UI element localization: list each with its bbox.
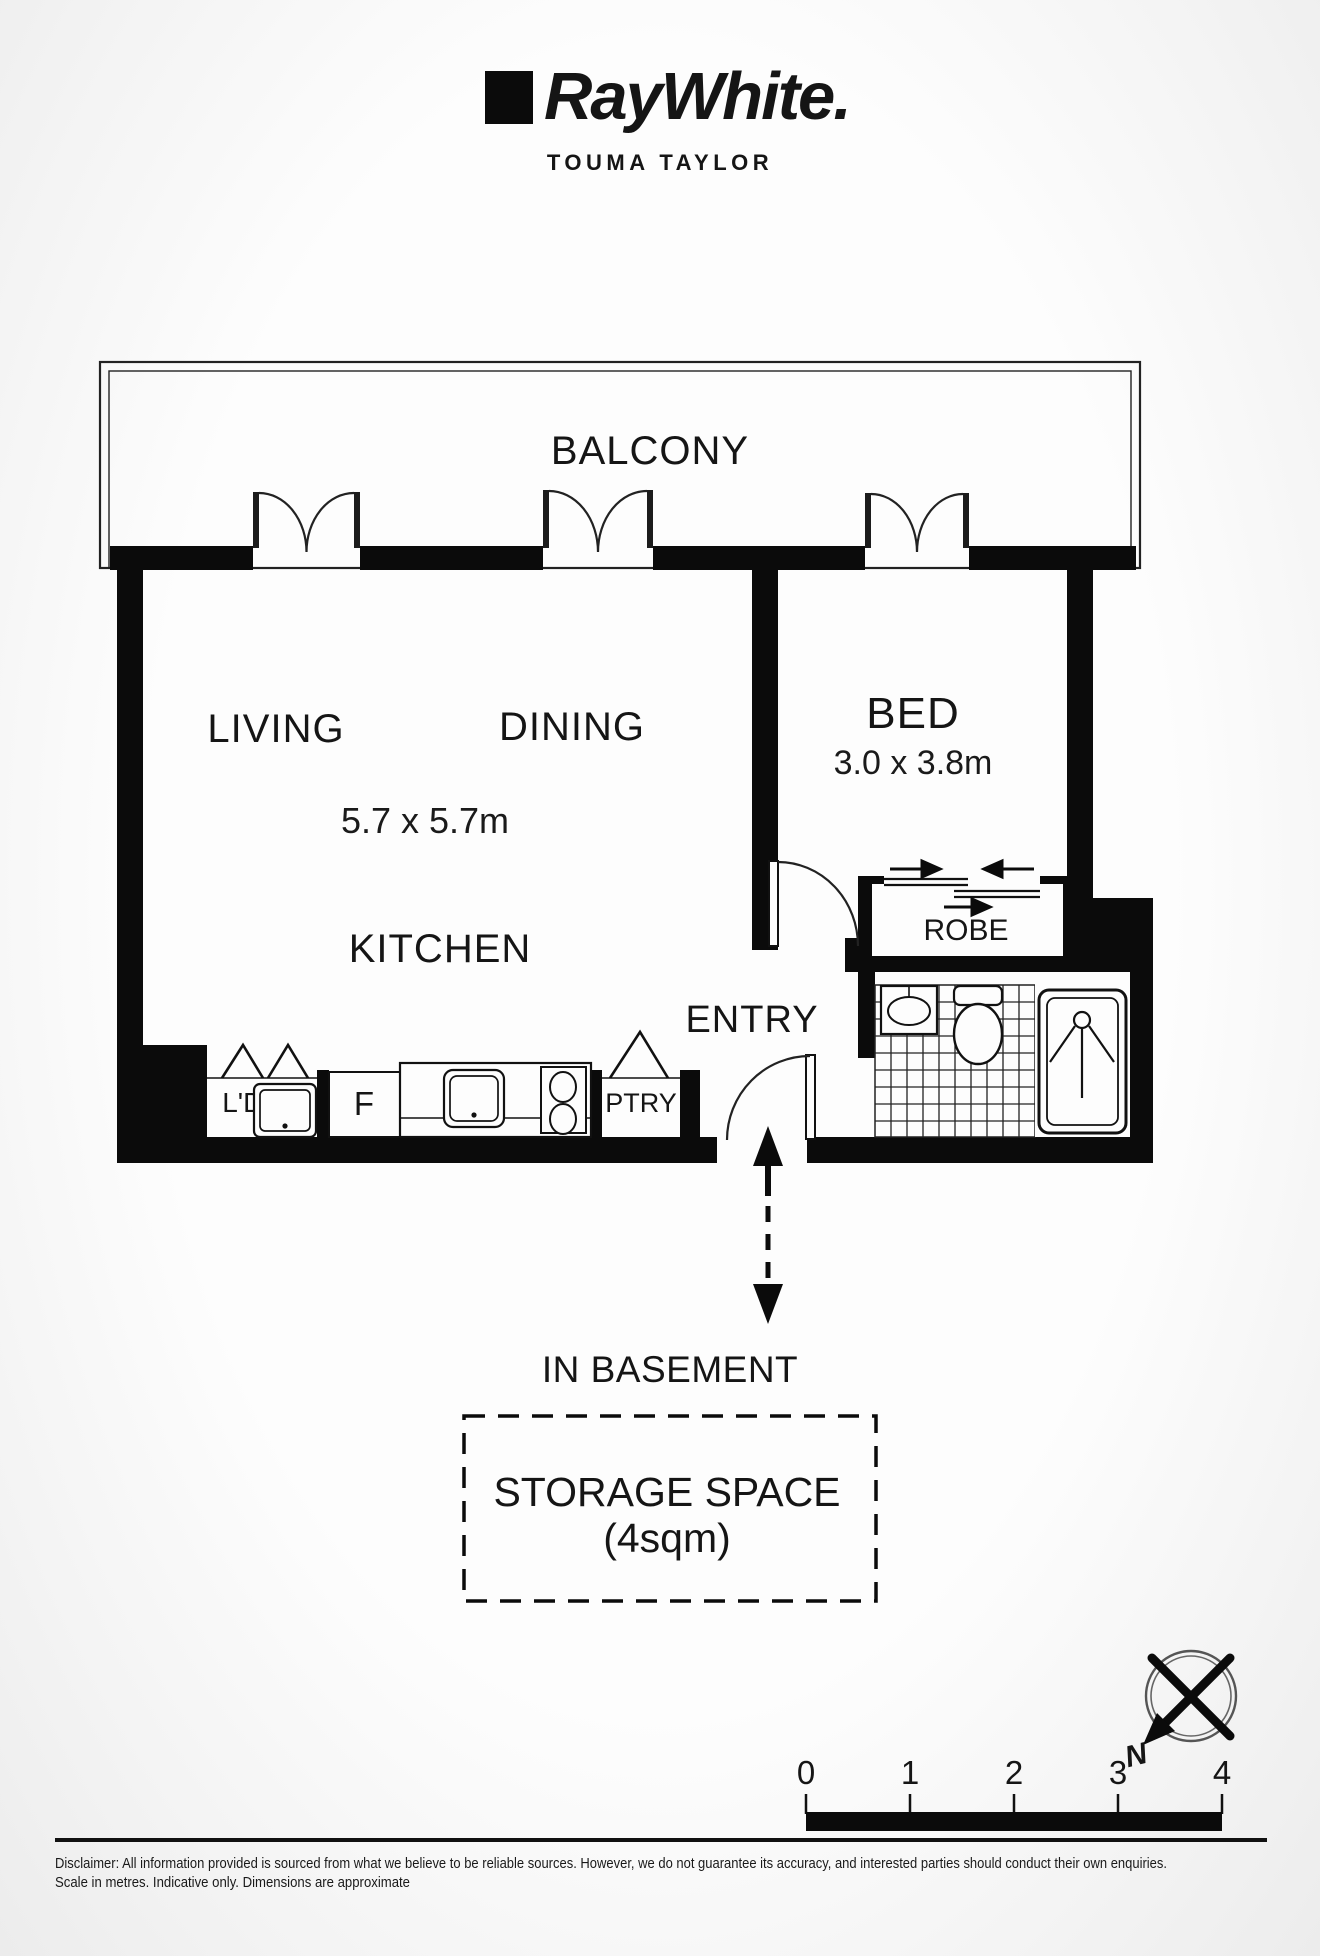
bottom-wall <box>807 1137 1153 1163</box>
fridge-label: F <box>354 1085 374 1122</box>
north-wall <box>360 546 543 570</box>
bifold-door-icon <box>610 1032 668 1078</box>
brand-square-icon <box>485 71 533 124</box>
scale-tick-label: 3 <box>1109 1754 1127 1791</box>
bottom-wall <box>117 1137 717 1163</box>
scale-tick-label: 4 <box>1213 1754 1231 1791</box>
entry-door <box>727 1055 815 1140</box>
bed-dimensions: 3.0 x 3.8m <box>834 744 993 782</box>
entry-label: ENTRY <box>685 999 818 1041</box>
bifold-door-icon <box>222 1045 308 1078</box>
corner-wall <box>1067 898 1153 972</box>
french-door <box>253 492 360 552</box>
bath-right-wall <box>1130 970 1153 1163</box>
bed-label: BED <box>866 689 959 738</box>
laundry-closet: L'DRY <box>207 1045 317 1137</box>
french-door <box>865 493 969 552</box>
storage-box: STORAGE SPACE (4sqm) <box>464 1416 876 1601</box>
floorplan-canvas: RayWhite. TOUMA TAYLOR <box>0 0 1320 1956</box>
bench-sink <box>444 1070 504 1127</box>
living-dimensions: 5.7 x 5.7m <box>341 800 509 841</box>
kitchen-label: KITCHEN <box>349 927 532 971</box>
robe-label: ROBE <box>923 914 1008 947</box>
pantry-label: PTRY <box>605 1088 677 1118</box>
toilet-icon <box>954 986 1002 1064</box>
scale-note-text: Scale in metres. Indicative only. Dimens… <box>55 1875 410 1891</box>
bathroom-sink <box>881 986 937 1034</box>
stub-wall <box>591 1070 602 1137</box>
bed-door <box>769 861 858 946</box>
shower-icon <box>1035 972 1130 1137</box>
stub-wall <box>317 1070 329 1137</box>
north-wall <box>969 546 1136 570</box>
disclaimer-text: Disclaimer: All information provided is … <box>55 1856 1167 1872</box>
dining-label: DINING <box>499 705 645 749</box>
cooktop-icon <box>541 1067 586 1134</box>
scale-tick-label: 0 <box>797 1754 815 1791</box>
office-name: TOUMA TAYLOR <box>547 150 773 175</box>
brand-logo: RayWhite. TOUMA TAYLOR <box>485 59 850 175</box>
scale-bar: 0 1 2 3 4 <box>797 1754 1231 1831</box>
scale-tick-label: 1 <box>901 1754 919 1791</box>
kitchen-bench <box>400 1063 591 1137</box>
storage-title: STORAGE SPACE <box>493 1469 840 1515</box>
french-door <box>543 490 653 552</box>
pantry-closet: PTRY <box>602 1032 680 1118</box>
basement-arrow-icon <box>753 1126 783 1324</box>
laundry-sink <box>254 1084 316 1137</box>
scale-tick-label: 2 <box>1005 1754 1023 1791</box>
balcony-label: BALCONY <box>551 429 749 473</box>
fridge-space: F <box>329 1072 400 1137</box>
floorplan-page: RayWhite. TOUMA TAYLOR <box>0 0 1320 1956</box>
storage-size: (4sqm) <box>603 1515 731 1561</box>
living-label: LIVING <box>207 707 344 751</box>
north-wall <box>653 546 865 570</box>
bed-right-wall <box>1067 570 1093 905</box>
bath-left-wall <box>858 972 875 1058</box>
bathroom <box>875 972 1130 1137</box>
stub-wall <box>680 1070 700 1137</box>
basement-note: IN BASEMENT <box>542 1349 798 1390</box>
footer-divider <box>55 1838 1267 1842</box>
brand-name: RayWhite. <box>544 59 850 134</box>
robe-closet: ROBE <box>845 861 1072 972</box>
